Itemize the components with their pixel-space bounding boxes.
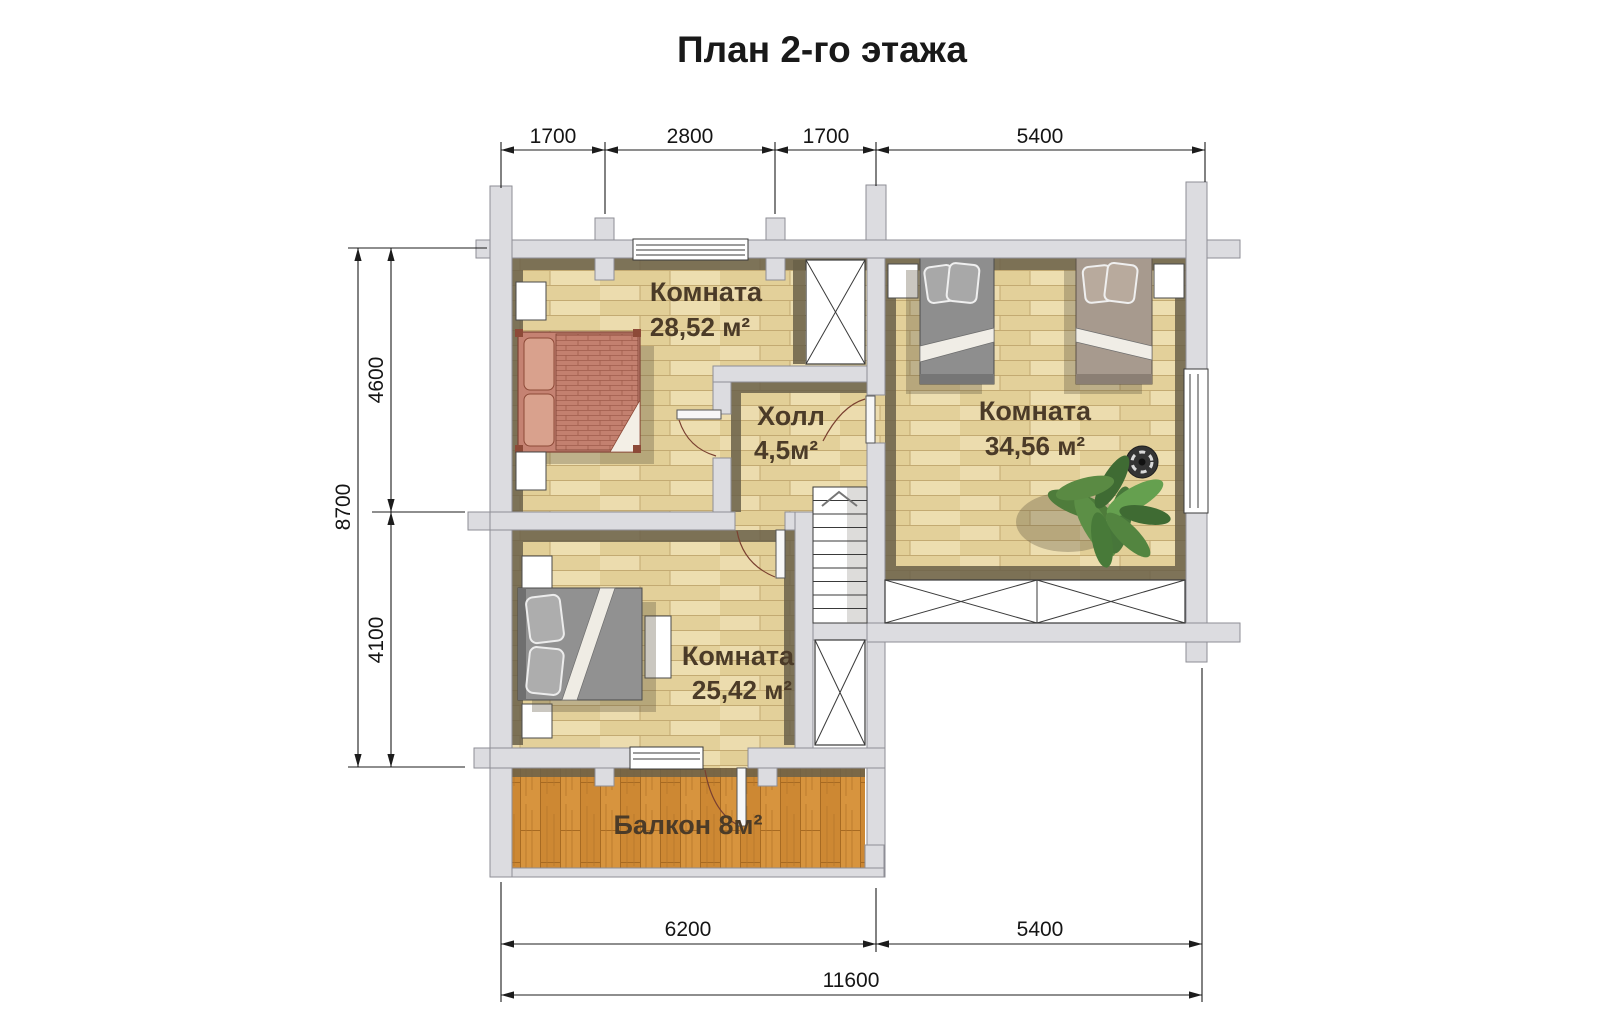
- dim-bottom-2: 5400: [1017, 918, 1064, 941]
- pillow: [1104, 262, 1138, 303]
- window-right-wall: [1184, 369, 1208, 513]
- balcony-label: Балкон 8м²: [613, 810, 762, 840]
- room3-area: 25,42 м²: [692, 675, 793, 705]
- dim-top-4: 5400: [1017, 125, 1064, 148]
- pillow: [946, 263, 980, 304]
- pillow: [526, 646, 565, 695]
- wall-core-upper: [867, 258, 885, 395]
- window-balcony-wall: [630, 747, 703, 769]
- dimension-left: 8700 4600 4100: [332, 248, 487, 767]
- dim-top-1: 1700: [530, 125, 577, 148]
- floor-hall-stairwell: [813, 382, 867, 487]
- pillow: [524, 394, 554, 446]
- dim-bottom-1: 6200: [665, 918, 712, 941]
- pillow: [525, 594, 564, 644]
- floor-plan-page: Комната 28,52 м² Холл 4,5м² Комната 34,5…: [0, 0, 1600, 1028]
- wall-bottom-right: [867, 623, 1240, 642]
- dim-bottom-total: 11600: [823, 969, 880, 992]
- wall-under-stairs: [813, 623, 867, 640]
- dim-left-total: 8700: [332, 484, 355, 531]
- dim-left-2: 4100: [365, 617, 388, 664]
- staircase: [813, 487, 867, 623]
- wall-core-lower: [867, 443, 885, 877]
- floor-plan-drawing: Комната 28,52 м² Холл 4,5м² Комната 34,5…: [0, 0, 1600, 1028]
- nightstand: [1154, 264, 1184, 298]
- door-gap-room3: [735, 512, 785, 530]
- wall-top: [476, 240, 1240, 258]
- room1-area: 28,52 м²: [650, 312, 751, 342]
- nightstand: [516, 452, 546, 490]
- wall-mid-left: [490, 512, 735, 530]
- bed-double-gray: [518, 588, 642, 700]
- room3-name: Комната: [682, 641, 795, 671]
- dimension-top: 1700 2800 1700 5400: [501, 125, 1205, 214]
- hall-area: 4,5м²: [754, 435, 818, 465]
- wall-hall-west-upper: [713, 382, 731, 414]
- pillow: [524, 338, 554, 390]
- stair-railing: [885, 580, 1185, 623]
- wall-room3-east: [795, 512, 813, 765]
- dim-top-2: 2800: [667, 125, 714, 148]
- wall-left: [490, 186, 512, 877]
- closet-shaft-lower: [815, 640, 865, 745]
- wall-bottom-left-east: [748, 748, 885, 768]
- bed-single-gray: [920, 258, 994, 384]
- window-top-wall: [633, 239, 748, 260]
- room2-name: Комната: [979, 396, 1092, 426]
- room1-name: Комната: [650, 277, 763, 307]
- wall-hall-north: [713, 366, 885, 382]
- balcony-rail: [512, 868, 884, 877]
- page-title: План 2-го этажа: [677, 29, 967, 70]
- nightstand: [516, 282, 546, 320]
- dim-left-1: 4600: [365, 357, 388, 404]
- bed-double-terracotta: [515, 329, 641, 453]
- dim-top-3: 1700: [803, 125, 850, 148]
- hall-name: Холл: [757, 401, 825, 431]
- closet-shaft-upper: [806, 260, 865, 364]
- door-gap-balcony: [703, 748, 748, 768]
- door-gap-room1: [713, 414, 731, 458]
- room2-area: 34,56 м²: [985, 431, 1086, 461]
- bed-single-taupe: [1076, 258, 1152, 384]
- nightstand: [522, 556, 552, 590]
